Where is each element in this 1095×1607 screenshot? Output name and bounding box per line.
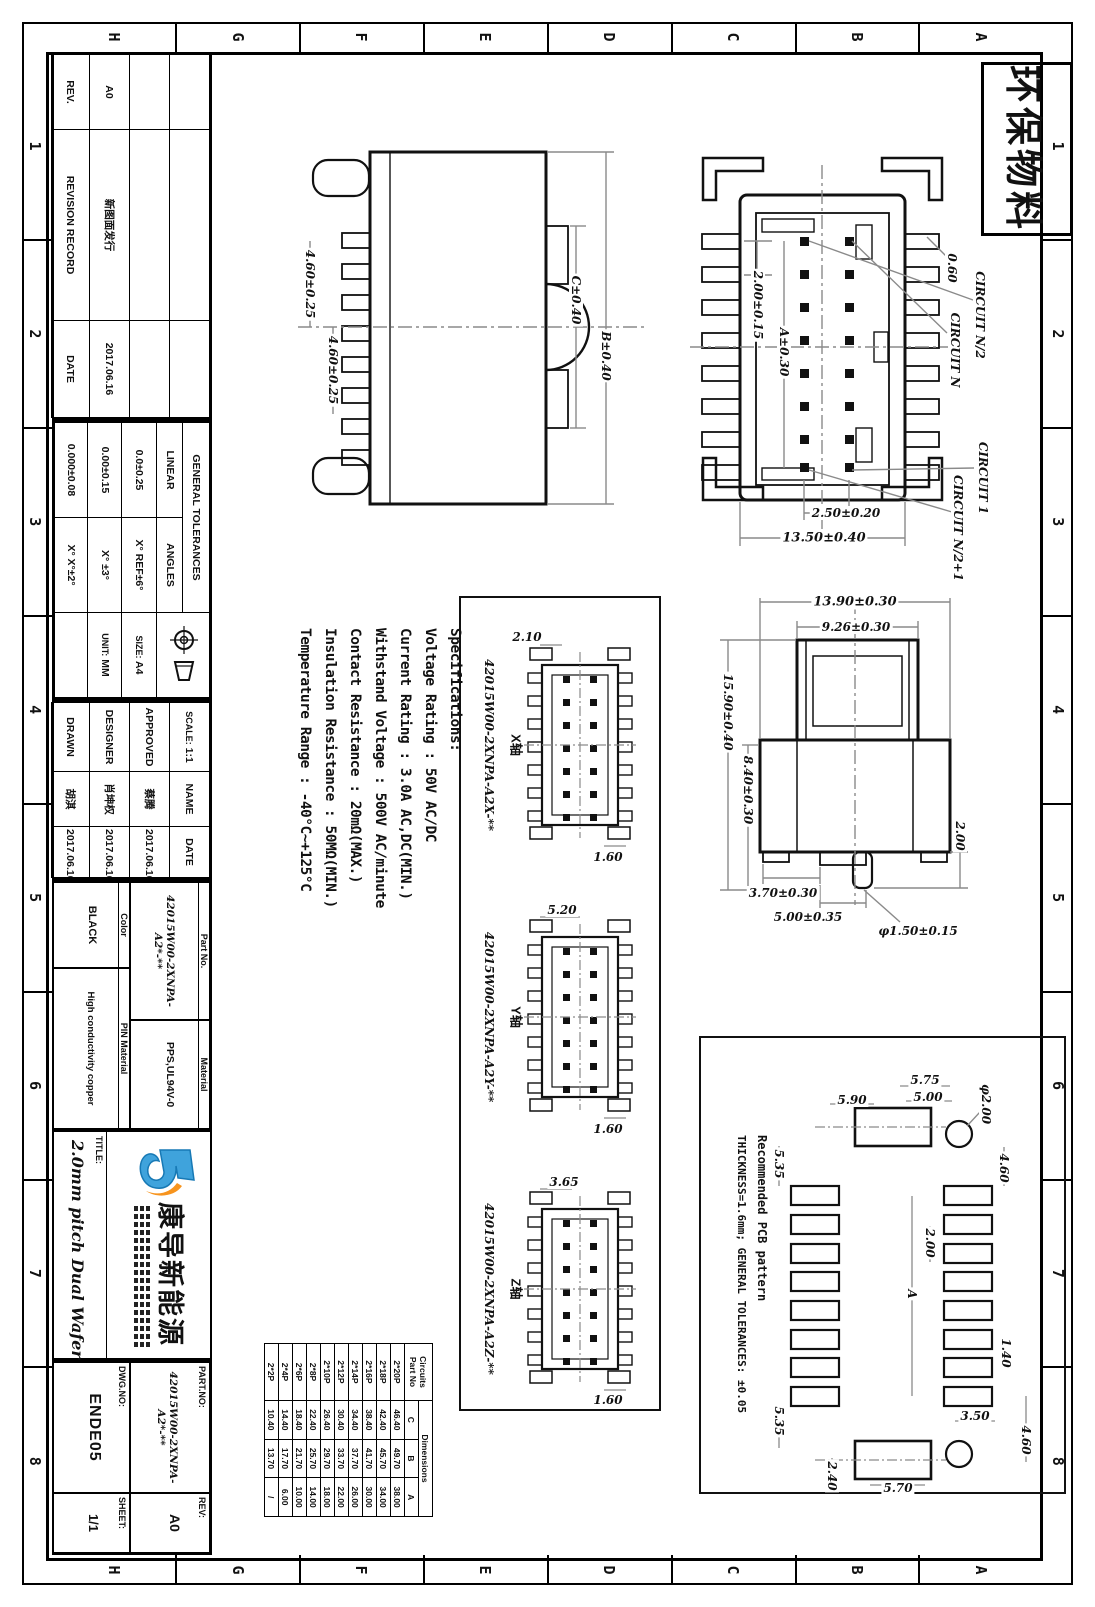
dim-pcb-span-a: A (905, 1287, 919, 1300)
callout-circuit-n2p1: CIRCUIT N/2+1 (951, 473, 965, 583)
axis-views-box (460, 597, 660, 1410)
dim-front-height: 15.90±0.40 (721, 672, 735, 753)
dim-side-c: C±0.40 (569, 274, 583, 327)
dim-pcb-pitch: 2.00 (923, 1226, 937, 1259)
dim-pcb-500: 5.00 (911, 1090, 944, 1104)
front-view (720, 598, 968, 922)
dim-axis-z-top: 3.65 (547, 1175, 580, 1189)
dim-pcb-350: 3.50 (958, 1409, 991, 1423)
dim-front-outer: 13.90±0.30 (811, 595, 898, 610)
callout-circuit-n: CIRCUIT N (948, 311, 962, 390)
dim-axis-x-bottom: 1.60 (591, 850, 624, 864)
views-linework (0, 0, 1095, 1607)
dim-side-height-2: 4.60±0.25 (326, 334, 340, 407)
side-view (298, 152, 648, 504)
dim-pin-span: A±0.30 (777, 326, 791, 379)
dim-pcb-535-top: 5.35 (772, 1147, 786, 1180)
dim-side-b: B±0.40 (599, 329, 613, 382)
dim-pcb-575: 5.75 (908, 1073, 941, 1087)
axis-view-y (524, 917, 636, 1118)
dim-lead-width: 0.60 (945, 251, 959, 284)
dim-peg-diameter: φ1.50±0.15 (876, 924, 959, 938)
dim-axis-y-top: 5.20 (545, 903, 578, 917)
dim-pcb-590: 5.90 (835, 1093, 868, 1107)
pcb-pattern-box (700, 1037, 1065, 1493)
dim-pcb-140: 1.40 (999, 1336, 1013, 1369)
dim-pcb-460-bottom: 4.60 (1019, 1423, 1033, 1456)
dim-row-pitch: 2.50±0.20 (810, 506, 883, 520)
views-layer: 2.00±0.15 A±0.30 0.60 CIRCUIT N/2 CIRCUI… (0, 0, 1095, 1607)
dim-axis-y-bottom: 1.60 (591, 1122, 624, 1136)
dim-pcb-240: 2.40 (825, 1459, 839, 1492)
dim-leg-offset: 3.70±0.30 (747, 886, 820, 900)
dim-axis-z-bottom: 1.60 (591, 1393, 624, 1407)
dim-pcb-535-bottom: 5.35 (772, 1404, 786, 1437)
axis-view-x (524, 645, 636, 846)
dim-pcb-hole: φ2.00 (979, 1082, 993, 1126)
callout-circuit-1: CIRCUIT 1 (976, 440, 990, 516)
dim-pcb-570: 5.70 (881, 1481, 914, 1495)
top-view (690, 158, 974, 546)
dim-side-height-1: 4.60±0.25 (303, 248, 317, 321)
callout-circuit-n2: CIRCUIT N/2 (973, 269, 987, 361)
dim-front-inner: 9.26±0.30 (820, 620, 893, 634)
dim-pin-pitch: 2.00±0.15 (751, 269, 765, 342)
dim-axis-x-top: 2.10 (510, 630, 543, 644)
drawing-sheet: 环保物料 Specifications: Voltage Rating : 50… (0, 0, 1095, 1607)
dim-pcb-460-top: 4.60 (997, 1151, 1011, 1184)
dim-peg-length: 2.00 (953, 819, 967, 852)
dim-overall-width: 13.50±0.40 (780, 531, 867, 546)
dim-leg-pitch: 5.00±0.35 (772, 910, 845, 924)
axis-view-z (524, 1189, 636, 1390)
dim-base-height: 8.40±0.30 (741, 754, 755, 827)
